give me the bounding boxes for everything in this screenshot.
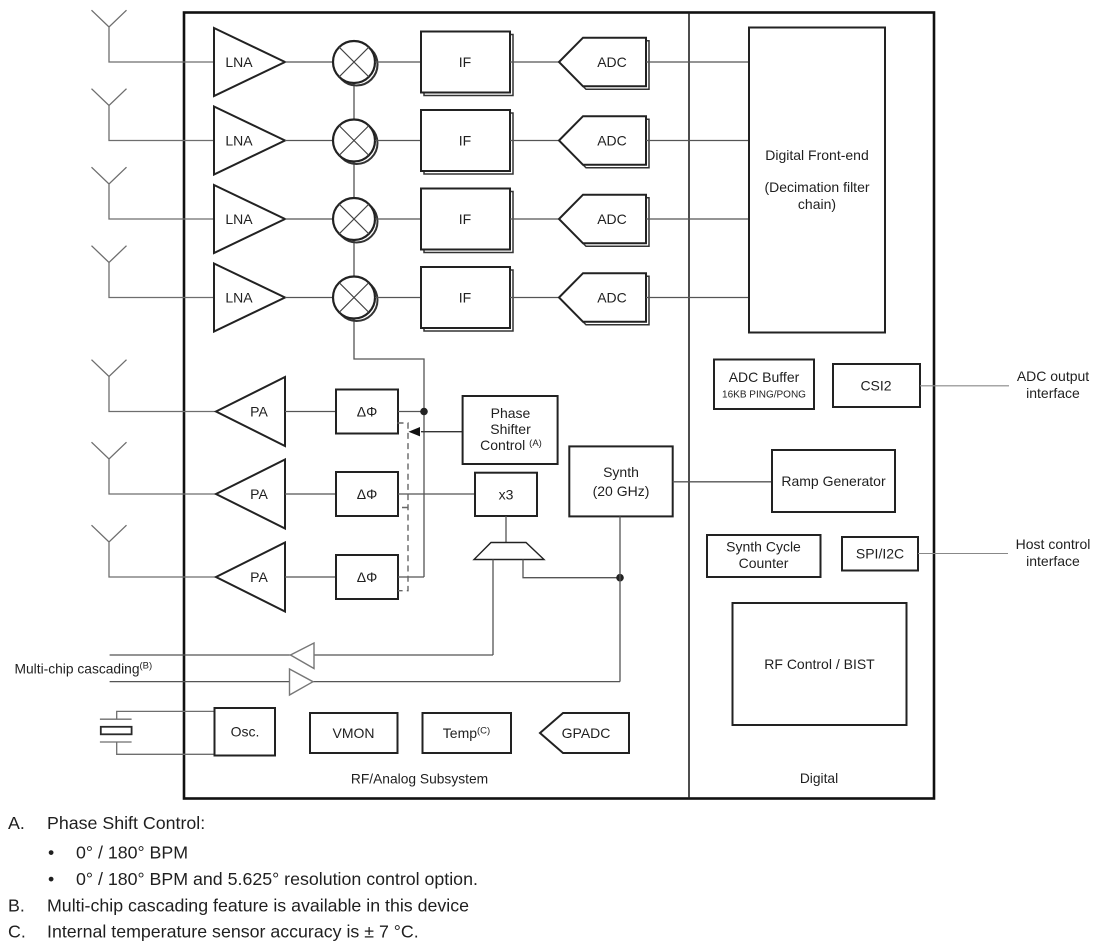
svg-text:ΔΦ: ΔΦ [357, 404, 378, 420]
svg-text:B.: B. [8, 896, 25, 916]
svg-text:Multi-chip cascading(B): Multi-chip cascading(B) [15, 661, 153, 677]
svg-text:RF/Analog Subsystem: RF/Analog Subsystem [351, 772, 488, 787]
svg-text:0° / 180° BPM: 0° / 180° BPM [76, 843, 188, 863]
svg-text:LNA: LNA [225, 133, 253, 149]
svg-text:LNA: LNA [225, 290, 253, 306]
svg-text:Shifter: Shifter [490, 421, 531, 437]
svg-text:Host control: Host control [1016, 536, 1091, 552]
svg-text:Phase: Phase [491, 405, 531, 421]
svg-text:Multi-chip cascading feature i: Multi-chip cascading feature is availabl… [47, 896, 469, 916]
svg-text:Synth: Synth [603, 464, 639, 480]
svg-text:ΔΦ: ΔΦ [357, 486, 378, 502]
svg-text:ADC Buffer: ADC Buffer [729, 369, 800, 385]
svg-text:RF Control / BIST: RF Control / BIST [764, 656, 875, 672]
svg-text:Digital Front-end: Digital Front-end [765, 147, 869, 163]
svg-text:Digital: Digital [800, 771, 838, 786]
svg-text:A.: A. [8, 813, 25, 833]
svg-text:ADC: ADC [597, 211, 627, 227]
svg-text:IF: IF [459, 54, 471, 70]
svg-text:Phase Shift Control:: Phase Shift Control: [47, 813, 205, 833]
svg-text:Synth Cycle: Synth Cycle [726, 539, 801, 555]
svg-text:IF: IF [459, 133, 471, 149]
svg-text:LNA: LNA [225, 54, 253, 70]
svg-text:C.: C. [8, 922, 26, 942]
svg-text:PA: PA [250, 404, 268, 420]
svg-text:ADC output: ADC output [1017, 368, 1089, 384]
svg-text:interface: interface [1026, 553, 1080, 569]
svg-text:0° / 180° BPM and 5.625° resol: 0° / 180° BPM and 5.625° resolution cont… [76, 869, 478, 889]
svg-text:x3: x3 [499, 487, 514, 503]
svg-text:(Decimation filter: (Decimation filter [764, 179, 869, 195]
svg-text:VMON: VMON [333, 725, 375, 741]
svg-text:(20 GHz): (20 GHz) [593, 483, 650, 499]
svg-text:Osc.: Osc. [231, 724, 260, 740]
svg-text:ADC: ADC [597, 290, 627, 306]
svg-text:CSI2: CSI2 [860, 378, 891, 394]
svg-text:IF: IF [459, 290, 471, 306]
svg-text:•: • [48, 843, 54, 863]
svg-text:SPI/I2C: SPI/I2C [856, 546, 904, 562]
svg-text:ADC: ADC [597, 54, 627, 70]
svg-text:16KB PING/PONG: 16KB PING/PONG [722, 390, 806, 401]
svg-text:LNA: LNA [225, 211, 253, 227]
svg-text:Internal temperature sensor ac: Internal temperature sensor accuracy is … [47, 922, 419, 942]
svg-text:•: • [48, 869, 54, 889]
svg-text:Ramp Generator: Ramp Generator [781, 473, 886, 489]
svg-text:ΔΦ: ΔΦ [357, 569, 378, 585]
svg-text:interface: interface [1026, 385, 1080, 401]
svg-text:chain): chain) [798, 196, 836, 212]
svg-text:PA: PA [250, 486, 268, 502]
svg-text:IF: IF [459, 211, 471, 227]
svg-text:ADC: ADC [597, 133, 627, 149]
svg-text:PA: PA [250, 569, 268, 585]
svg-text:Counter: Counter [739, 555, 789, 571]
svg-text:GPADC: GPADC [562, 725, 611, 741]
